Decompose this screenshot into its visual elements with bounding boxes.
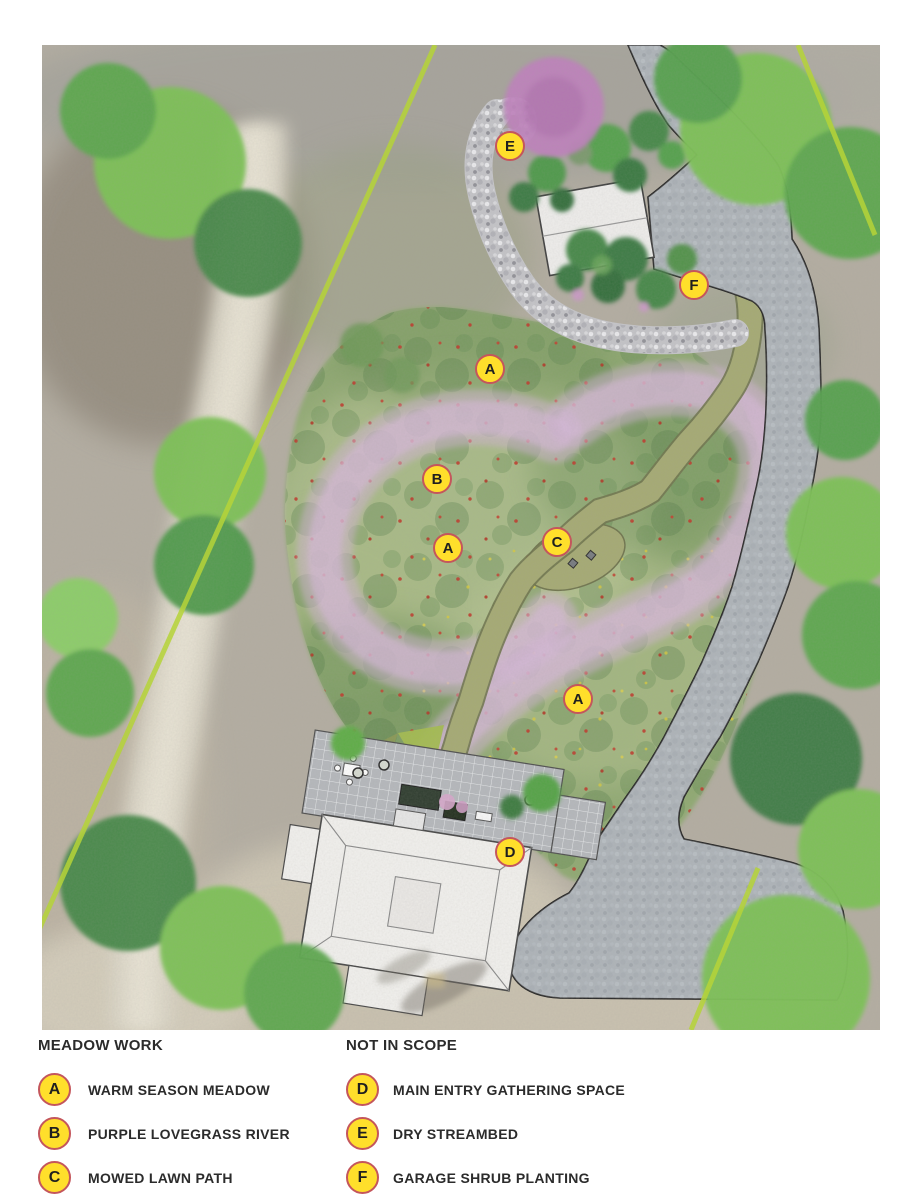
plan-marker-c: C: [542, 527, 572, 557]
legend-item-dry-streambed: E DRY STREAMBED: [346, 1117, 518, 1150]
legend-key-d: D: [346, 1073, 379, 1106]
legend-item-main-entry-gathering-space: D MAIN ENTRY GATHERING SPACE: [346, 1073, 625, 1106]
plan-marker-b: B: [422, 464, 452, 494]
site-plan-sheet: E F A B A C A D MEADOW WORK A WARM SEASO…: [0, 0, 901, 1200]
legend: MEADOW WORK A WARM SEASON MEADOW B PURPL…: [0, 1030, 901, 1200]
legend-label: DRY STREAMBED: [393, 1126, 518, 1142]
legend-label: WARM SEASON MEADOW: [88, 1082, 270, 1098]
plan-marker-e: E: [495, 131, 525, 161]
legend-key-f: F: [346, 1161, 379, 1194]
site-plan-rendering: [42, 45, 880, 1030]
legend-item-garage-shrub-planting: F GARAGE SHRUB PLANTING: [346, 1161, 590, 1194]
plan-marker-a-3: A: [563, 684, 593, 714]
legend-key-c: C: [38, 1161, 71, 1194]
plan-marker-f: F: [679, 270, 709, 300]
legend-item-mowed-lawn-path: C MOWED LAWN PATH: [38, 1161, 233, 1194]
legend-label: MOWED LAWN PATH: [88, 1170, 233, 1186]
legend-label: MAIN ENTRY GATHERING SPACE: [393, 1082, 625, 1098]
legend-label: PURPLE LOVEGRASS RIVER: [88, 1126, 290, 1142]
legend-label: GARAGE SHRUB PLANTING: [393, 1170, 590, 1186]
plan-marker-d: D: [495, 837, 525, 867]
legend-item-purple-lovegrass-river: B PURPLE LOVEGRASS RIVER: [38, 1117, 290, 1150]
site-plan-canvas: [42, 45, 880, 1030]
legend-key-e: E: [346, 1117, 379, 1150]
plan-marker-a-2: A: [433, 533, 463, 563]
legend-key-a: A: [38, 1073, 71, 1106]
legend-section-header-meadow-work: MEADOW WORK: [38, 1037, 163, 1054]
legend-key-b: B: [38, 1117, 71, 1150]
legend-item-warm-season-meadow: A WARM SEASON MEADOW: [38, 1073, 270, 1106]
legend-section-header-not-in-scope: NOT IN SCOPE: [346, 1037, 457, 1054]
plan-marker-a-1: A: [475, 354, 505, 384]
